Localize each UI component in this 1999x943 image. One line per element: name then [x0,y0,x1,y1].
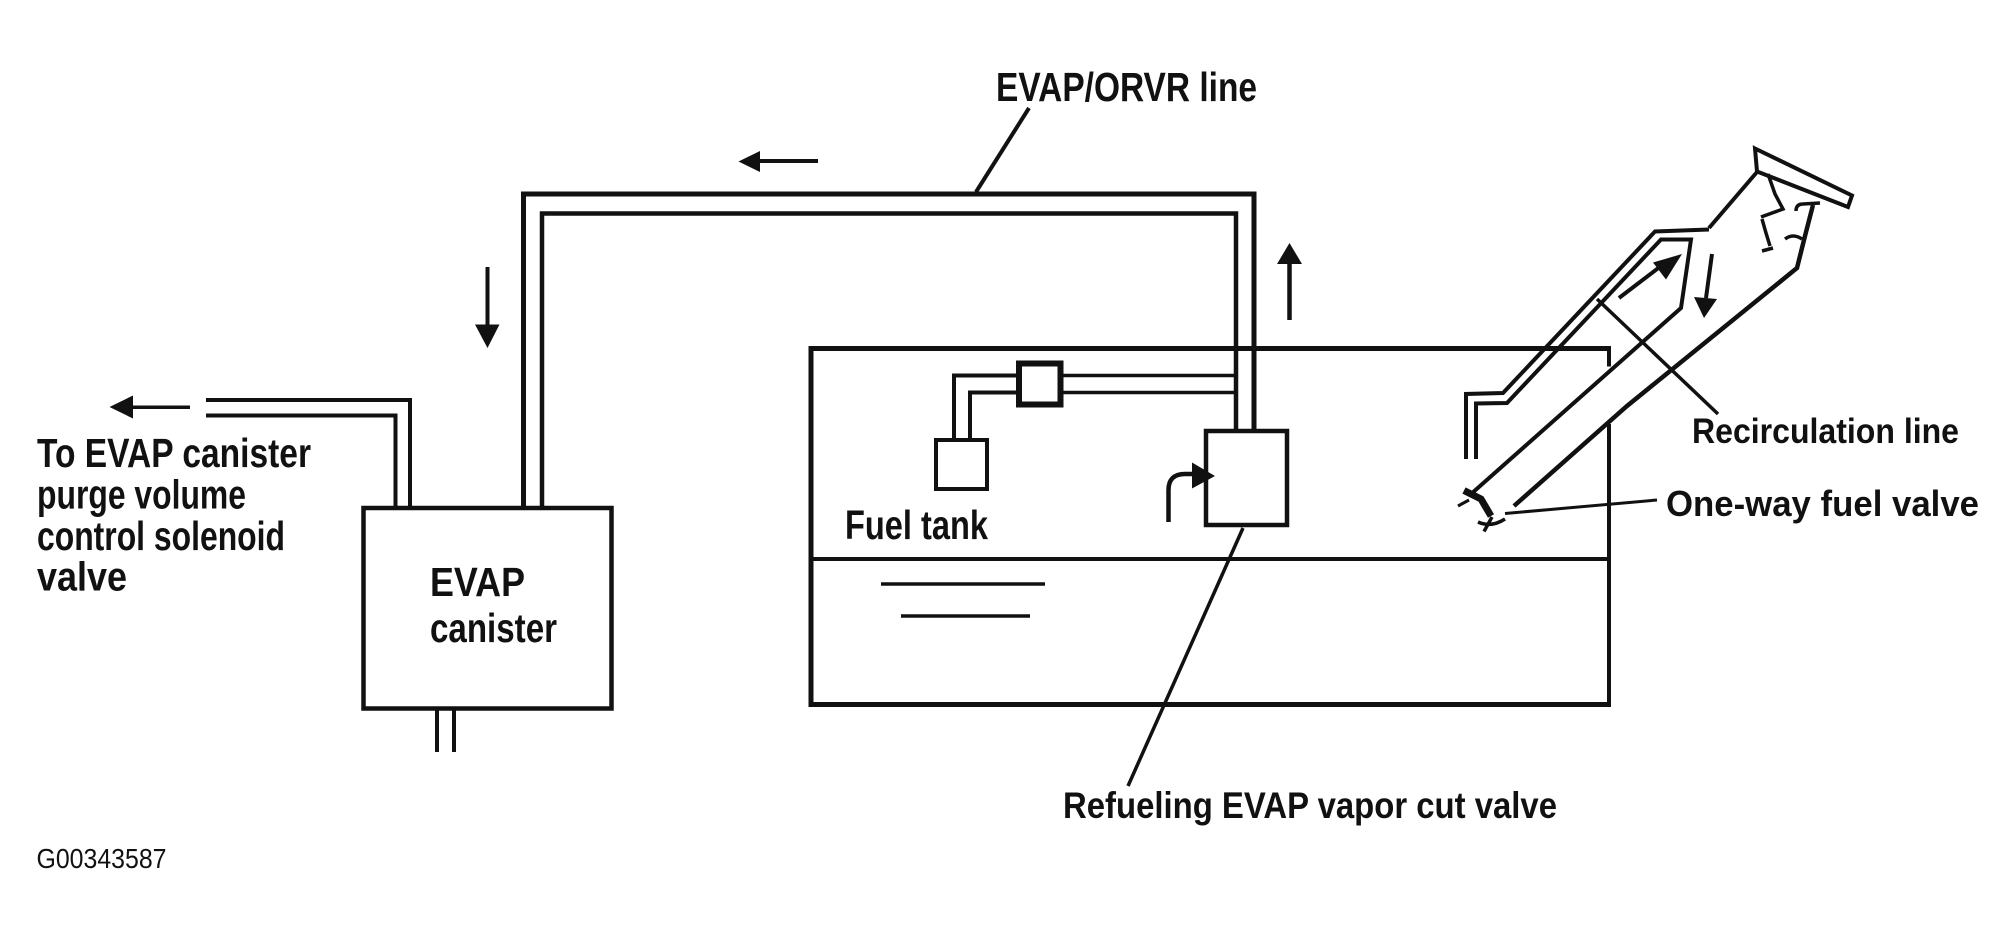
svg-text:G00343587: G00343587 [37,843,167,874]
svg-text:purge volume: purge volume [37,472,246,518]
svg-text:Fuel tank: Fuel tank [845,502,988,548]
svg-text:canister: canister [430,605,557,651]
svg-text:control solenoid: control solenoid [37,513,285,559]
svg-text:EVAP/ORVR line: EVAP/ORVR line [996,64,1257,110]
svg-text:EVAP: EVAP [430,559,525,605]
svg-text:Refueling EVAP vapor cut valve: Refueling EVAP vapor cut valve [1063,785,1557,826]
svg-text:One-way fuel valve: One-way fuel valve [1666,483,1979,524]
svg-text:valve: valve [37,554,127,600]
svg-text:Recirculation line: Recirculation line [1692,412,1959,451]
svg-text:To EVAP canister: To EVAP canister [37,430,311,476]
